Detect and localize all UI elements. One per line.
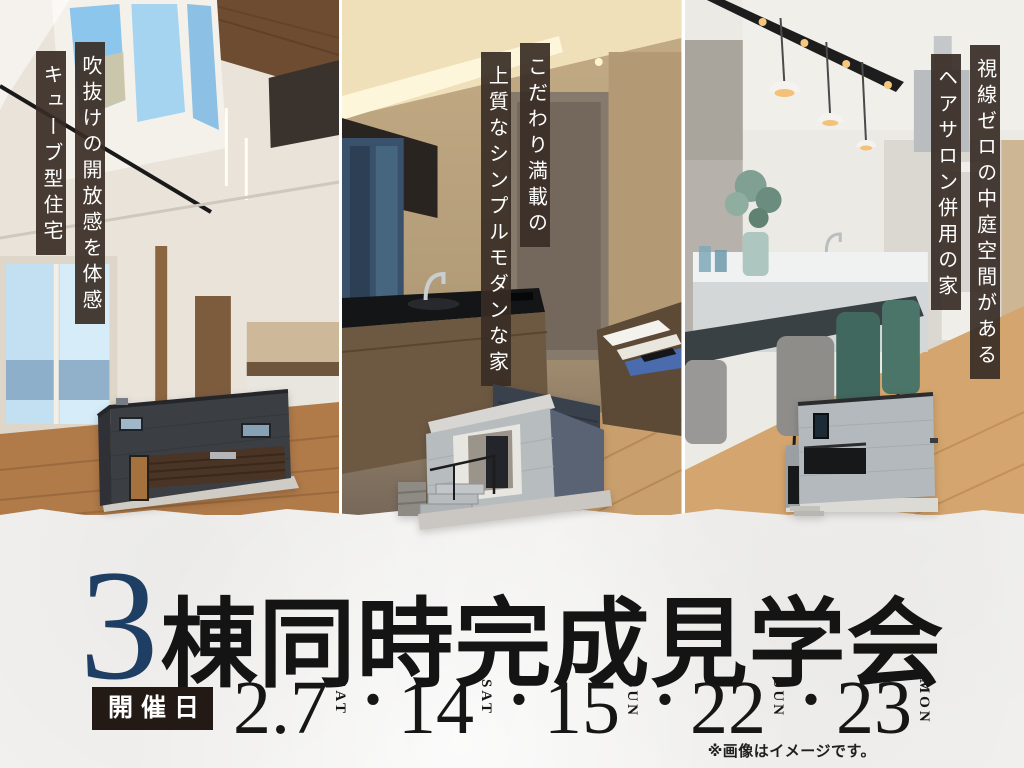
house-render-two-tone bbox=[398, 374, 643, 546]
date-label-box: 開催日 bbox=[92, 687, 213, 730]
date-day: 14 bbox=[398, 677, 474, 739]
date-separator-icon: ・ bbox=[496, 679, 542, 725]
image-disclaimer: ※画像はイメージです。 bbox=[708, 740, 876, 761]
house-illustration-dark-cube bbox=[92, 386, 305, 524]
date-item: 15 SUN bbox=[544, 677, 640, 739]
caption-bar-secondary: ヘアサロン併用の家 bbox=[931, 54, 961, 310]
caption-bar-primary: 吹抜けの開放感を体感 bbox=[75, 42, 105, 324]
date-item: 23 MON bbox=[836, 677, 932, 739]
date-item: 14 SAT bbox=[398, 677, 494, 739]
flyer-canvas: 吹抜けの開放感を体感 キューブ型住宅 bbox=[0, 0, 1024, 768]
caption-panel-2: こだわり満載の 上質なシンプルモダンな家 bbox=[481, 43, 550, 386]
caption-bar-primary: こだわり満載の bbox=[520, 43, 550, 247]
house-render-flat-roof bbox=[786, 386, 948, 528]
caption-bar-secondary: キューブ型住宅 bbox=[36, 51, 66, 255]
event-dates-row: 開催日 2.7 SAT ・ 14 SAT ・ 15 SUN ・ 22 SUN ・ bbox=[0, 677, 1024, 739]
caption-bar-primary: 視線ゼロの中庭空間がある bbox=[970, 45, 1000, 379]
caption-panel-3: 視線ゼロの中庭空間がある ヘアサロン併用の家 bbox=[931, 45, 1000, 379]
date-weekday: MON bbox=[915, 679, 932, 735]
date-separator-icon: ・ bbox=[788, 679, 834, 725]
date-weekday: SAT bbox=[477, 679, 494, 735]
caption-panel-1: 吹抜けの開放感を体感 キューブ型住宅 bbox=[36, 42, 105, 324]
date-separator-icon: ・ bbox=[350, 679, 396, 725]
date-day: 2.7 bbox=[233, 677, 328, 739]
date-weekday: SAT bbox=[331, 679, 348, 735]
date-separator-icon: ・ bbox=[642, 679, 688, 725]
date-day: 15 bbox=[544, 677, 620, 739]
date-day: 23 bbox=[836, 677, 912, 739]
date-item: 22 SUN bbox=[690, 677, 786, 739]
title-number-3: 3 bbox=[80, 556, 159, 695]
house-render-cube bbox=[92, 386, 305, 524]
caption-bar-secondary: 上質なシンプルモダンな家 bbox=[481, 52, 511, 386]
date-item: 2.7 SAT bbox=[233, 677, 348, 739]
house-illustration-porch-steps bbox=[398, 374, 643, 546]
date-weekday: SUN bbox=[769, 679, 786, 735]
house-illustration-gray-box bbox=[786, 386, 948, 528]
date-day: 22 bbox=[690, 677, 766, 739]
date-weekday: SUN bbox=[623, 679, 640, 735]
